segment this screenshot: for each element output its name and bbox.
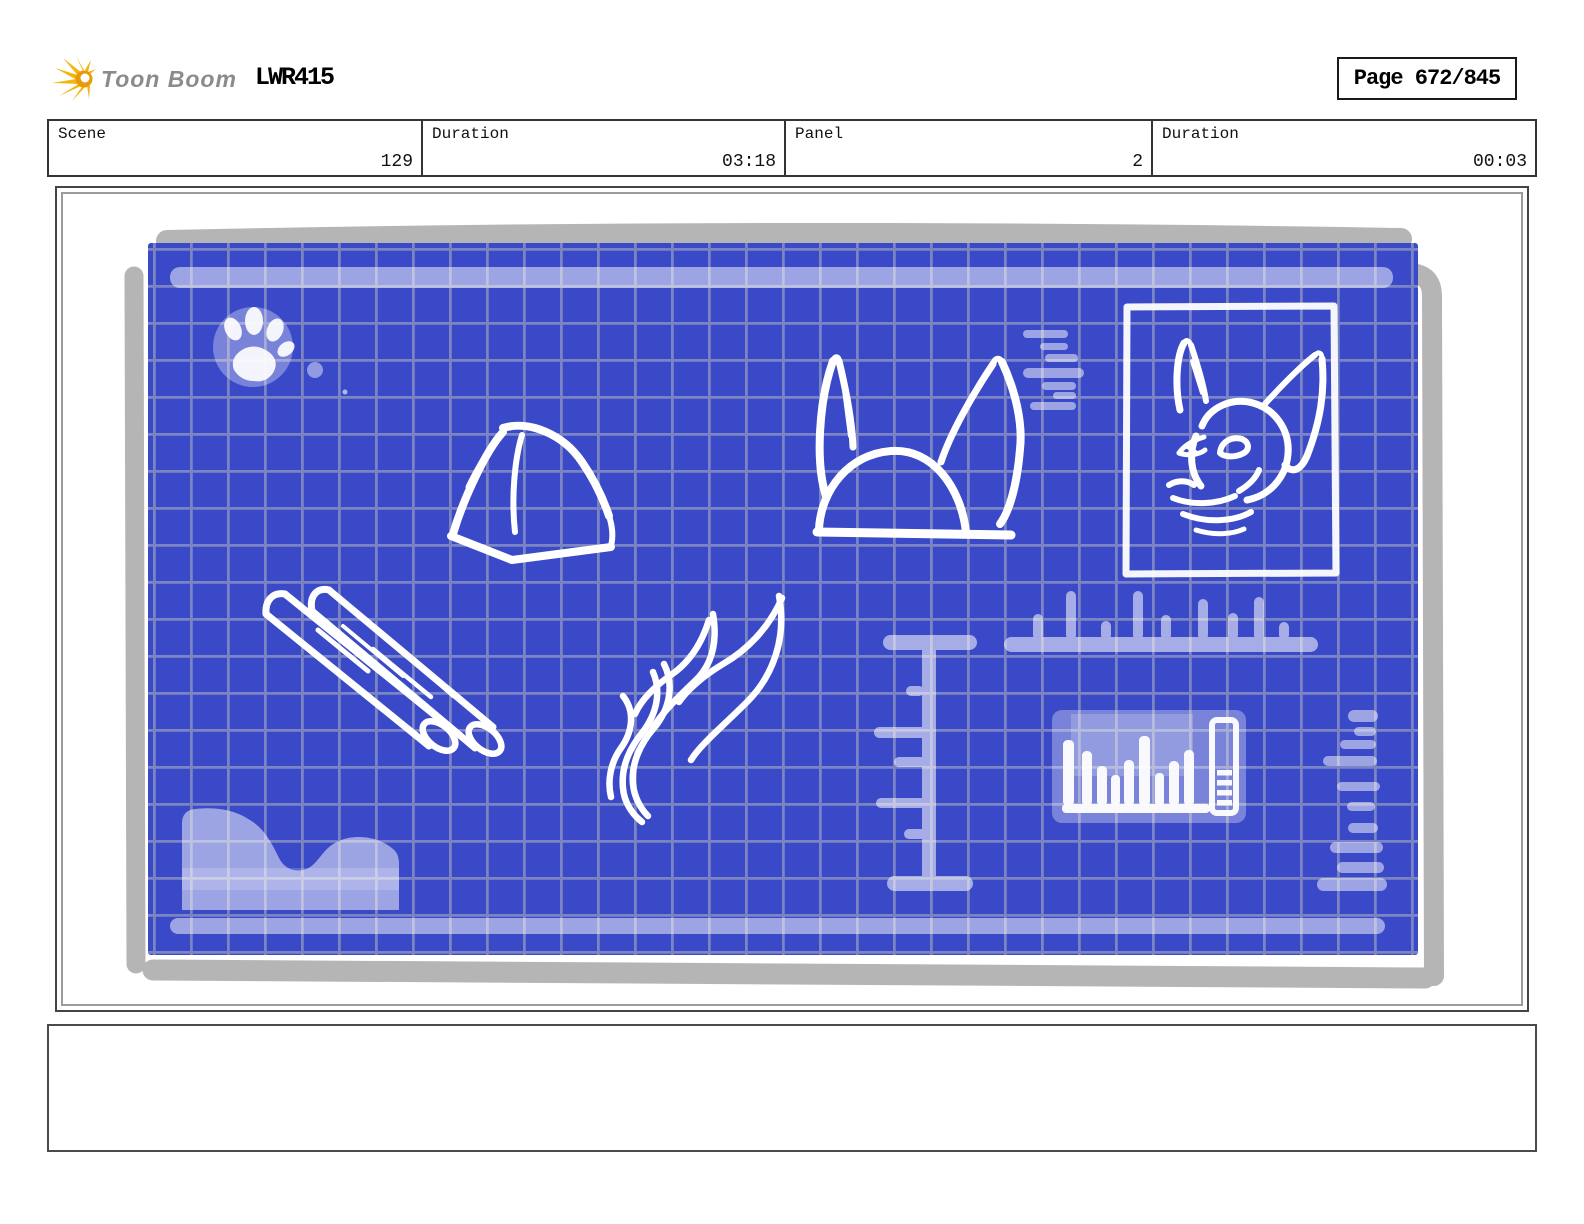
info-cell-panel-duration: Duration 00:03 (1151, 121, 1535, 175)
bar-chart-sketch (1052, 710, 1246, 823)
toon-boom-burst-icon (50, 55, 98, 103)
info-cell-scene: Scene 129 (49, 121, 421, 175)
page-number-label: Page 672/845 (1354, 66, 1500, 91)
paw-speck (343, 390, 348, 395)
scene-duration-label: Duration (432, 125, 509, 143)
project-code: LWR415 (255, 63, 333, 92)
bottom-highlight-band (170, 918, 1385, 934)
panel-duration-label: Duration (1162, 125, 1239, 143)
storyboard-artwork (63, 194, 1521, 1004)
page-number-box: Page 672/845 (1337, 57, 1517, 100)
info-cell-scene-duration: Duration 03:18 (421, 121, 784, 175)
caption-box (47, 1024, 1537, 1152)
scene-duration-value: 03:18 (722, 152, 776, 172)
scene-label: Scene (58, 125, 106, 143)
top-highlight-band (170, 267, 1393, 288)
storyboard-panel-frame (55, 186, 1529, 1012)
paw-dot (307, 362, 323, 378)
storyboard-panel-inner-frame (61, 192, 1523, 1006)
panel-label: Panel (795, 125, 843, 143)
panel-value: 2 (1132, 152, 1143, 172)
panel-duration-value: 00:03 (1473, 152, 1527, 172)
info-bar: Scene 129 Duration 03:18 Panel 2 Duratio… (47, 119, 1537, 177)
scene-value: 129 (381, 152, 413, 172)
toon-boom-wordmark: Toon Boom (101, 66, 237, 93)
info-cell-panel: Panel 2 (784, 121, 1151, 175)
